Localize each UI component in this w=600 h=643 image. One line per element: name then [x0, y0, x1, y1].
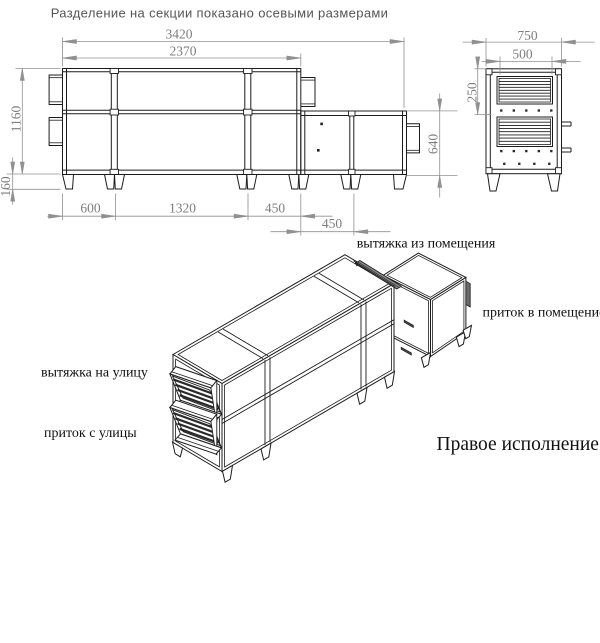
svg-text:3420: 3420	[166, 27, 193, 42]
svg-text:160: 160	[0, 176, 13, 197]
svg-text:500: 500	[512, 47, 533, 62]
svg-text:вытяжка из помещения: вытяжка из помещения	[357, 237, 496, 252]
svg-text:2370: 2370	[170, 44, 197, 59]
svg-text:Правое исполнение: Правое исполнение	[437, 434, 599, 455]
svg-text:750: 750	[517, 28, 538, 43]
svg-text:Разделение на секции показано: Разделение на секции показано осевыми ра…	[51, 6, 389, 21]
svg-text:450: 450	[265, 201, 286, 216]
svg-text:450: 450	[322, 216, 343, 231]
svg-text:вытяжка на улицу: вытяжка на улицу	[41, 366, 148, 381]
svg-text:приток в помещение: приток в помещение	[483, 306, 600, 321]
svg-text:1320: 1320	[169, 201, 196, 216]
svg-text:приток с улицы: приток с улицы	[44, 426, 137, 441]
svg-text:1160: 1160	[9, 106, 24, 133]
svg-text:640: 640	[426, 134, 441, 155]
svg-text:600: 600	[80, 201, 101, 216]
svg-text:250: 250	[465, 82, 480, 103]
